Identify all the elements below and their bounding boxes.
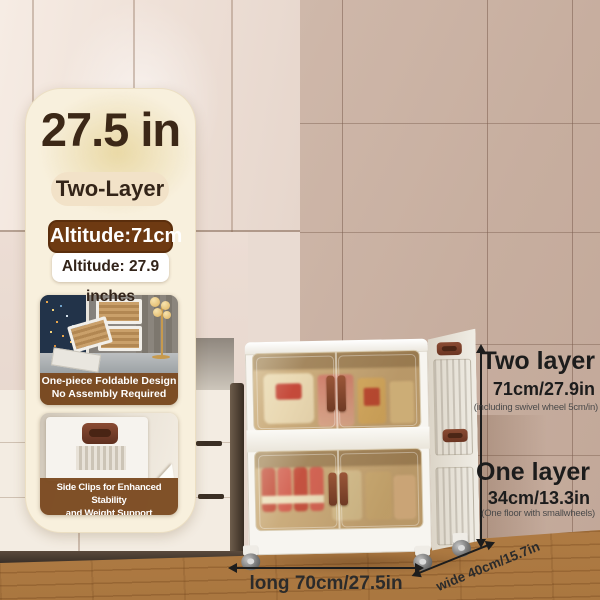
caption-line: Side Clips for Enhanced Stability xyxy=(40,481,178,507)
length-arrow-icon xyxy=(236,567,416,569)
side-clip-handle xyxy=(437,342,462,356)
caption-line: and Weight Support xyxy=(40,507,178,515)
lamp-globe xyxy=(163,311,171,319)
one-layer-label: One layer xyxy=(465,458,590,487)
door-handle xyxy=(339,472,348,505)
feature-caption-clips: Side Clips for Enhanced Stability and We… xyxy=(40,478,178,515)
counter-niche xyxy=(194,338,234,392)
side-clip-handle xyxy=(443,429,468,443)
lamp-globe xyxy=(150,297,160,307)
two-layer-label: Two layer xyxy=(470,347,595,376)
door-handle xyxy=(328,473,337,506)
tile-grout-line xyxy=(300,123,600,124)
tile-grout-line xyxy=(300,232,600,233)
lamp-base xyxy=(152,355,170,359)
one-layer-note: (One floor with smallwheels) xyxy=(455,508,595,519)
cabinet-seam-line xyxy=(231,0,233,232)
one-layer-value: 34cm/13.3in xyxy=(465,488,590,509)
upper-door-window xyxy=(253,351,421,430)
two-layer-note: (including swivel wheel 5cm/in) xyxy=(458,402,598,413)
lamp-globe xyxy=(153,308,162,317)
door-frame xyxy=(258,454,338,530)
tile-grout-line xyxy=(572,0,573,534)
height-headline: 27.5 in xyxy=(25,102,196,157)
door-handle xyxy=(337,375,346,411)
arrow-head-left xyxy=(228,563,237,573)
city-lights xyxy=(46,301,48,303)
drawer-handle-slot xyxy=(196,441,222,446)
lower-door-window xyxy=(255,449,423,530)
feature-image-clips: Side Clips for Enhanced Stability and We… xyxy=(40,413,178,515)
caption-line: One-piece Foldable Design xyxy=(40,375,178,388)
spec-card: 27.5 in Two-Layer Altitude:71cm Altitude… xyxy=(25,88,196,533)
altitude-imperial-badge: Altitude: 27.9 inches xyxy=(52,252,169,282)
length-label: long 70cm/27.5in xyxy=(246,573,406,595)
door-frame xyxy=(256,356,335,430)
clip-rib-texture xyxy=(76,446,126,470)
altitude-metric-badge: Altitude:71cm xyxy=(48,220,173,253)
lamp-globe xyxy=(161,301,170,310)
product-infographic: 27.5 in Two-Layer Altitude:71cm Altitude… xyxy=(0,0,600,600)
side-clip-closeup xyxy=(82,423,118,444)
door-frame xyxy=(338,354,417,428)
door-handle xyxy=(326,376,335,412)
cabinet-front xyxy=(245,339,432,556)
two-layer-value: 71cm/27.9in xyxy=(470,379,595,400)
drawer-handle-slot xyxy=(198,494,224,499)
feature-caption-foldable: One-piece Foldable Design No Assembly Re… xyxy=(40,373,178,405)
door-frame xyxy=(340,452,420,528)
caption-line: No Assembly Required xyxy=(40,388,178,401)
cabinet-side-pillar xyxy=(230,383,244,559)
storage-cabinet-product xyxy=(242,329,481,580)
two-layer-tag: Two-Layer xyxy=(51,172,169,206)
